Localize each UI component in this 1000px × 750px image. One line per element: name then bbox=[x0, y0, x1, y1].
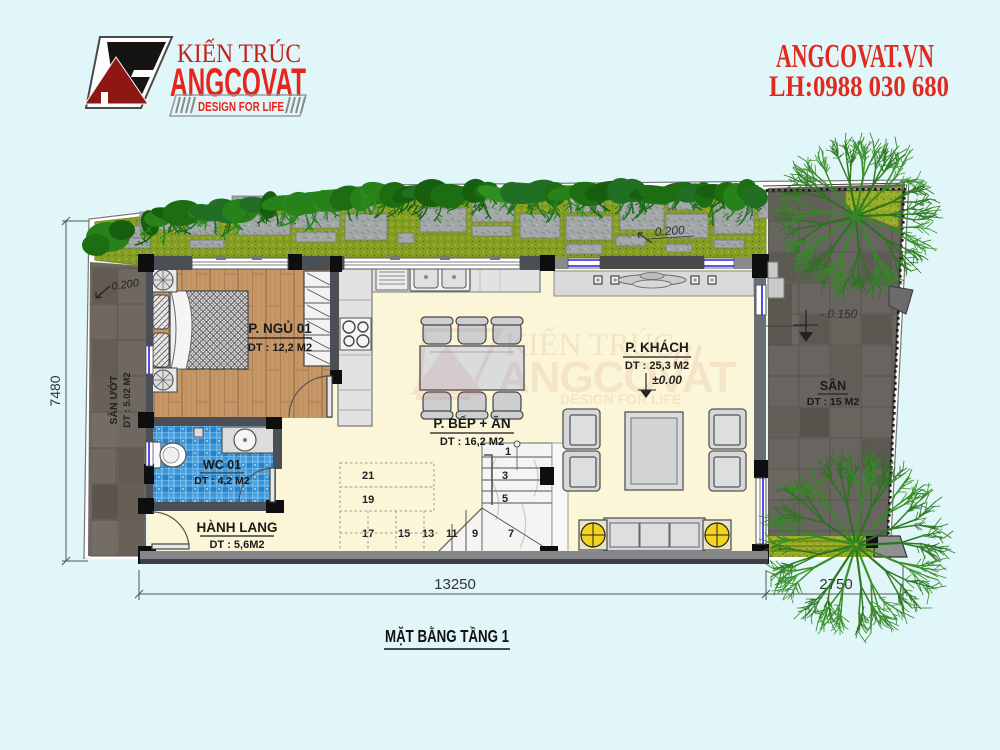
svg-text:WC 01: WC 01 bbox=[203, 458, 241, 472]
svg-text:DT : 16,2 M2: DT : 16,2 M2 bbox=[440, 436, 504, 448]
svg-text:DT : 12,2 M2: DT : 12,2 M2 bbox=[248, 342, 312, 354]
svg-text:HÀNH LANG: HÀNH LANG bbox=[197, 520, 278, 535]
svg-text:13250: 13250 bbox=[434, 576, 476, 593]
svg-text:1: 1 bbox=[505, 446, 511, 458]
svg-text:15: 15 bbox=[398, 528, 410, 540]
svg-text:DESIGN FOR LIFE: DESIGN FOR LIFE bbox=[198, 99, 284, 114]
svg-text:DESIGN FOR LIFE: DESIGN FOR LIFE bbox=[560, 391, 681, 407]
svg-text:7: 7 bbox=[508, 528, 514, 540]
svg-text:21: 21 bbox=[362, 470, 374, 482]
svg-text:LH:0988 030 680: LH:0988 030 680 bbox=[769, 70, 949, 103]
svg-text:P. BẾP + ĂN: P. BẾP + ĂN bbox=[433, 416, 510, 431]
svg-text:- 0.150: - 0.150 bbox=[820, 307, 858, 321]
svg-text:SÂN ƯỚT: SÂN ƯỚT bbox=[107, 375, 120, 425]
svg-text:MẶT BẰNG TẦNG 1: MẶT BẰNG TẦNG 1 bbox=[385, 625, 509, 646]
svg-text:11: 11 bbox=[446, 528, 458, 540]
svg-text:3: 3 bbox=[502, 470, 508, 482]
svg-text:19: 19 bbox=[362, 494, 374, 506]
svg-text:P. NGỦ 01: P. NGỦ 01 bbox=[248, 321, 312, 336]
svg-text:DT : 4,2 M2: DT : 4,2 M2 bbox=[194, 475, 250, 487]
svg-text:DT : 15 M2: DT : 15 M2 bbox=[807, 396, 860, 408]
svg-text:DT : 5.02 M2: DT : 5.02 M2 bbox=[122, 372, 133, 427]
svg-text:7480: 7480 bbox=[47, 375, 63, 406]
svg-text:SÂN: SÂN bbox=[820, 378, 846, 393]
svg-text:9: 9 bbox=[472, 528, 478, 540]
svg-text:DT : 5,6M2: DT : 5,6M2 bbox=[209, 539, 264, 551]
svg-text:5: 5 bbox=[502, 493, 508, 505]
